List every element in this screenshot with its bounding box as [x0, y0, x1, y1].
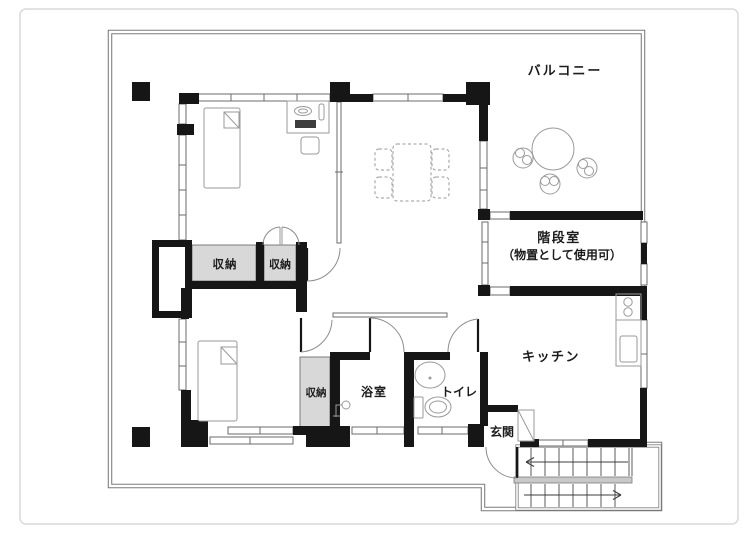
window — [418, 427, 468, 434]
wall — [478, 285, 490, 296]
wall — [588, 439, 647, 447]
hall-boundary-line — [333, 313, 447, 317]
bed-icon — [204, 108, 240, 188]
closet-label: 収納 — [269, 257, 291, 271]
exterior-stairs — [514, 446, 660, 509]
bed-frame — [198, 341, 237, 421]
window — [482, 222, 488, 285]
wall — [181, 420, 208, 447]
wall — [404, 352, 414, 447]
window — [179, 104, 186, 124]
window — [210, 437, 293, 444]
wall — [350, 94, 373, 102]
wall — [479, 104, 488, 141]
wall — [181, 288, 189, 319]
desk-top — [287, 101, 329, 133]
window — [490, 212, 510, 219]
wall — [487, 405, 518, 412]
wall — [256, 242, 264, 284]
wall — [480, 352, 488, 426]
window — [490, 287, 510, 295]
wall — [296, 242, 307, 312]
window — [352, 427, 404, 434]
stair-landing-rail — [514, 477, 632, 483]
bed-icon — [198, 341, 237, 421]
floor-plan: バルコニー 階段室 （物置として使用可） キッチン 収納 収納 収納 浴室 トイ… — [0, 0, 745, 540]
closet-label: 収納 — [213, 257, 238, 271]
toilet-label: トイレ — [441, 385, 477, 399]
stair-room-note: （物置として使用可） — [502, 247, 622, 262]
kitchen-label: キッチン — [522, 349, 580, 364]
wall — [177, 124, 194, 135]
wall — [414, 352, 450, 360]
desk-chair — [301, 137, 319, 154]
window — [179, 319, 186, 390]
window — [480, 141, 487, 209]
wall — [443, 94, 467, 102]
stair-room-label: 階段室 — [537, 230, 581, 245]
pillar — [132, 82, 150, 101]
window — [641, 264, 647, 285]
bed-frame — [204, 108, 240, 188]
entrance-label: 玄関 — [490, 424, 514, 439]
pillar — [466, 82, 490, 105]
wall — [340, 352, 370, 360]
wall — [640, 388, 647, 446]
wall — [641, 243, 647, 264]
floor-plan-page: バルコニー 階段室 （物置として使用可） キッチン 収納 収納 収納 浴室 トイ… — [0, 0, 745, 540]
pillar — [132, 427, 150, 447]
wall — [468, 424, 484, 447]
washbasin-drain — [429, 377, 432, 380]
pillar — [330, 82, 350, 102]
wall — [510, 211, 643, 220]
wall — [478, 209, 490, 220]
window — [179, 135, 186, 240]
closet-label: 収納 — [306, 386, 327, 399]
bath-label: 浴室 — [361, 384, 387, 399]
keyboard-icon — [295, 120, 316, 128]
wall — [306, 426, 350, 447]
wall — [190, 281, 300, 289]
window — [641, 222, 647, 243]
wall — [179, 93, 199, 104]
shoe-cabinet-icon — [518, 410, 534, 441]
balcony-label: バルコニー — [528, 63, 603, 78]
